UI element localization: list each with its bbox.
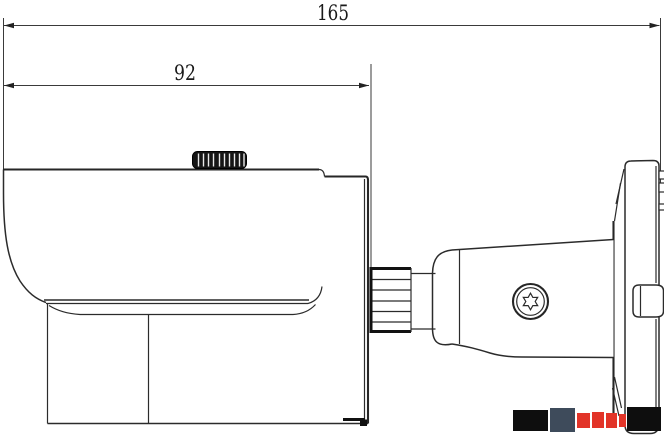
thumbscrew-knob: [193, 152, 247, 169]
watermark-red-glyph: [619, 414, 626, 427]
camera-body: [3, 152, 368, 424]
mount-base: [48, 303, 369, 426]
plate-chamfer: [615, 183, 621, 221]
rear-cap-top-edge: [325, 177, 369, 181]
plate-side-tab: [633, 285, 664, 317]
body-bottom-lip: [49, 305, 316, 315]
back-tab: [659, 171, 664, 179]
arrow-right-icon: [650, 23, 660, 28]
watermark-block-left: [513, 410, 548, 431]
wall-plate: [605, 161, 664, 434]
dimension-label-overall: 165: [317, 1, 349, 25]
conduit-joint: [370, 267, 436, 333]
watermark-red-glyph: [592, 412, 604, 428]
dimension-body-92: 92: [4, 61, 371, 268]
front-curve: [4, 170, 47, 303]
watermark-block-right: [627, 407, 661, 431]
cable-exit-block: [360, 420, 367, 427]
camera-dimension-drawing: 165 92: [0, 0, 664, 443]
back-tab: [659, 183, 664, 192]
mount-arm: [433, 240, 614, 358]
arrow-left-icon: [4, 23, 14, 28]
drawing-canvas: 165 92: [0, 0, 664, 443]
dimension-label-body: 92: [174, 61, 196, 85]
arrow-left-icon: [4, 83, 14, 88]
watermark-red-glyph: [606, 413, 617, 428]
back-tab: [659, 204, 664, 210]
arrow-right-icon: [359, 83, 369, 88]
thread-fill: [371, 268, 411, 333]
watermark-block-slate: [550, 408, 575, 432]
dimension-overall-165: 165: [4, 1, 661, 195]
barrel-bottom-corner: [308, 287, 322, 304]
watermark-red-glyph: [577, 413, 590, 428]
sunshield-rear-step: [319, 170, 325, 177]
